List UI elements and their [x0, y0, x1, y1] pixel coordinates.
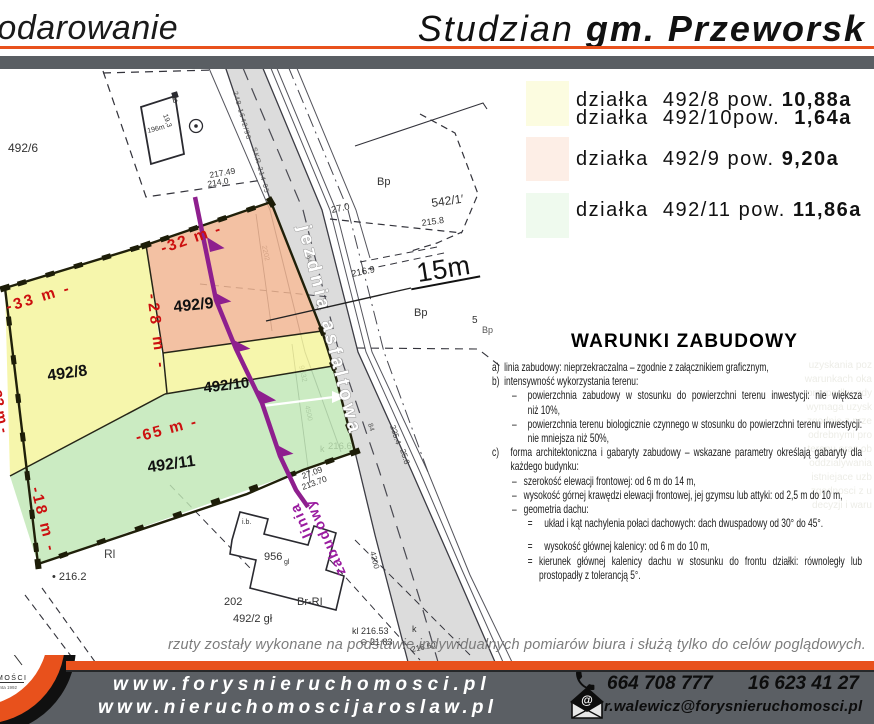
svg-text:542/1′: 542/1′: [430, 192, 465, 210]
svg-text:gl: gl: [284, 559, 290, 566]
svg-text:MOŚCI: MOŚCI: [0, 673, 27, 682]
svg-text:Bp: Bp: [414, 307, 427, 319]
svg-text:202: 202: [224, 596, 242, 608]
svg-text:492/6: 492/6: [8, 141, 38, 155]
svg-text:kl 216.53: kl 216.53: [352, 626, 389, 636]
svg-text:215.8: 215.8: [421, 215, 445, 228]
svg-text:Br-RI: Br-RI: [297, 596, 323, 608]
svg-text:@: @: [581, 693, 593, 707]
svg-text:27.0: 27.0: [330, 201, 350, 216]
svg-text:Bp: Bp: [482, 325, 493, 335]
svg-text:k: k: [412, 624, 417, 634]
svg-text:i.b.: i.b.: [242, 519, 251, 526]
svg-text:5: 5: [472, 315, 478, 326]
svg-text:anta 1992: anta 1992: [0, 685, 18, 690]
svg-text:216.9: 216.9: [350, 264, 376, 280]
svg-text:Bp: Bp: [377, 176, 390, 188]
svg-text:956: 956: [264, 551, 282, 563]
svg-text:492/2 gł: 492/2 gł: [233, 613, 273, 625]
svg-text:Rl: Rl: [104, 547, 115, 561]
svg-text:• 216.2: • 216.2: [52, 571, 86, 583]
